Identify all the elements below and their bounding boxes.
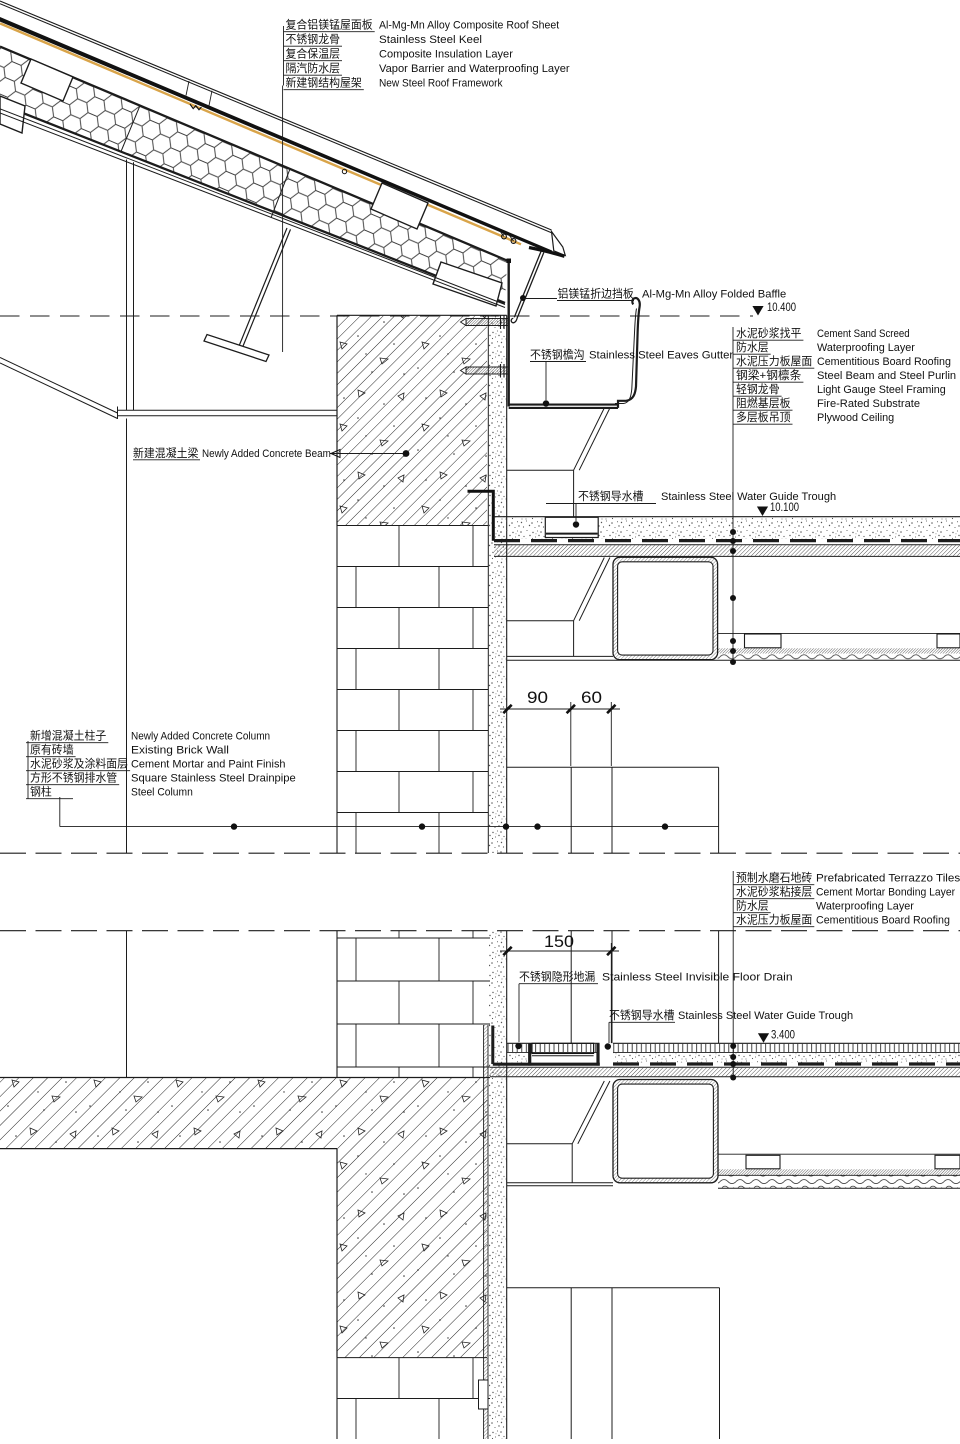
svg-text:Stainless Steel Water Guide Tr: Stainless Steel Water Guide Trough — [678, 1010, 853, 1022]
svg-text:钢梁+钢檩条: 钢梁+钢檩条 — [736, 368, 801, 382]
svg-text:Stainless Steel Eaves Gutter: Stainless Steel Eaves Gutter — [589, 350, 733, 362]
svg-text:新增混凝土柱子: 新增混凝土柱子 — [30, 729, 106, 743]
svg-text:水泥压力板屋面: 水泥压力板屋面 — [736, 354, 812, 368]
svg-text:水泥压力板屋面: 水泥压力板屋面 — [736, 913, 812, 927]
svg-text:新建混凝土梁: 新建混凝土梁 — [133, 446, 198, 460]
svg-text:复合铝镁锰屋面板: 复合铝镁锰屋面板 — [286, 18, 373, 32]
svg-text:Newly Added Concrete Beam: Newly Added Concrete Beam — [202, 448, 331, 460]
svg-text:Steel Beam and Steel Purlin: Steel Beam and Steel Purlin — [817, 370, 956, 382]
svg-text:Newly Added Concrete Column: Newly Added Concrete Column — [131, 731, 270, 743]
svg-text:150: 150 — [544, 932, 574, 951]
svg-text:不锈钢隐形地漏: 不锈钢隐形地漏 — [519, 971, 595, 984]
svg-text:阻燃基层板: 阻燃基层板 — [736, 396, 791, 410]
svg-text:多层板吊顶: 多层板吊顶 — [736, 410, 791, 424]
svg-text:方形不锈钢排水管: 方形不锈钢排水管 — [30, 771, 117, 785]
svg-text:铝镁锰折边挡板: 铝镁锰折边挡板 — [558, 287, 634, 301]
svg-text:水泥砂浆找平: 水泥砂浆找平 — [736, 326, 801, 340]
svg-text:不锈钢导水槽: 不锈钢导水槽 — [578, 490, 643, 503]
svg-text:钢柱: 钢柱 — [30, 785, 52, 799]
svg-text:Stainless Steel Water Guide Tr: Stainless Steel Water Guide Trough — [661, 491, 836, 503]
svg-text:原有砖墙: 原有砖墙 — [30, 743, 74, 757]
svg-text:Stainless Steel Keel: Stainless Steel Keel — [379, 34, 482, 46]
svg-text:Composite Insulation Layer: Composite Insulation Layer — [379, 49, 513, 61]
svg-text:60: 60 — [581, 688, 602, 707]
svg-text:Cement Sand Screed: Cement Sand Screed — [817, 328, 910, 340]
svg-text:不锈钢龙骨: 不锈钢龙骨 — [286, 33, 341, 46]
svg-text:Steel Column: Steel Column — [131, 787, 193, 799]
svg-text:不锈钢导水槽: 不锈钢导水槽 — [609, 1009, 674, 1022]
svg-text:Cement Mortar Bonding Layer: Cement Mortar Bonding Layer — [816, 887, 955, 899]
svg-text:Prefabricated Terrazzo Tiles: Prefabricated Terrazzo Tiles — [816, 873, 960, 885]
svg-text:防水层: 防水层 — [736, 340, 769, 354]
svg-text:Cementitious Board Roofing: Cementitious Board Roofing — [816, 915, 950, 927]
svg-text:预制水磨石地砖: 预制水磨石地砖 — [736, 871, 812, 885]
svg-text:防水层: 防水层 — [736, 899, 769, 913]
svg-text:Plywood Ceiling: Plywood Ceiling — [817, 412, 894, 424]
svg-text:Cementitious Board Roofing: Cementitious Board Roofing — [817, 356, 951, 368]
svg-text:Vapor Barrier and Waterproofin: Vapor Barrier and Waterproofing Layer — [379, 63, 570, 75]
svg-text:Waterproofing Layer: Waterproofing Layer — [817, 342, 915, 354]
svg-text:3.400: 3.400 — [771, 1028, 795, 1042]
svg-text:隔汽防水层: 隔汽防水层 — [286, 61, 341, 75]
svg-text:复合保温层: 复合保温层 — [286, 47, 341, 61]
svg-text:Stainless Steel Invisible Floo: Stainless Steel Invisible Floor Drain — [602, 972, 793, 984]
svg-text:90: 90 — [527, 688, 548, 707]
svg-text:Al-Mg-Mn Alloy Folded Baffle: Al-Mg-Mn Alloy Folded Baffle — [642, 289, 786, 301]
svg-text:新建钢结构屋架: 新建钢结构屋架 — [286, 76, 362, 90]
svg-text:Fire-Rated Substrate: Fire-Rated Substrate — [817, 398, 920, 410]
svg-text:Square Stainless Steel Drainpi: Square Stainless Steel Drainpipe — [131, 773, 296, 785]
svg-text:水泥砂浆及涂料面层: 水泥砂浆及涂料面层 — [30, 757, 128, 771]
svg-text:Cement Mortar and Paint Finish: Cement Mortar and Paint Finish — [131, 759, 286, 771]
svg-text:Al-Mg-Mn Alloy Composite Roof: Al-Mg-Mn Alloy Composite Roof Sheet — [379, 20, 560, 32]
svg-text:New Steel Roof Framework: New Steel Roof Framework — [379, 78, 503, 90]
svg-text:Light Gauge Steel Framing: Light Gauge Steel Framing — [817, 384, 946, 396]
svg-text:Waterproofing Layer: Waterproofing Layer — [816, 901, 914, 913]
svg-text:Existing Brick Wall: Existing Brick Wall — [131, 745, 229, 757]
svg-text:水泥砂浆粘接层: 水泥砂浆粘接层 — [736, 885, 812, 899]
svg-text:10.400: 10.400 — [767, 300, 796, 314]
svg-text:轻钢龙骨: 轻钢龙骨 — [736, 382, 780, 396]
svg-text:不锈钢檐沟: 不锈钢檐沟 — [530, 348, 585, 362]
